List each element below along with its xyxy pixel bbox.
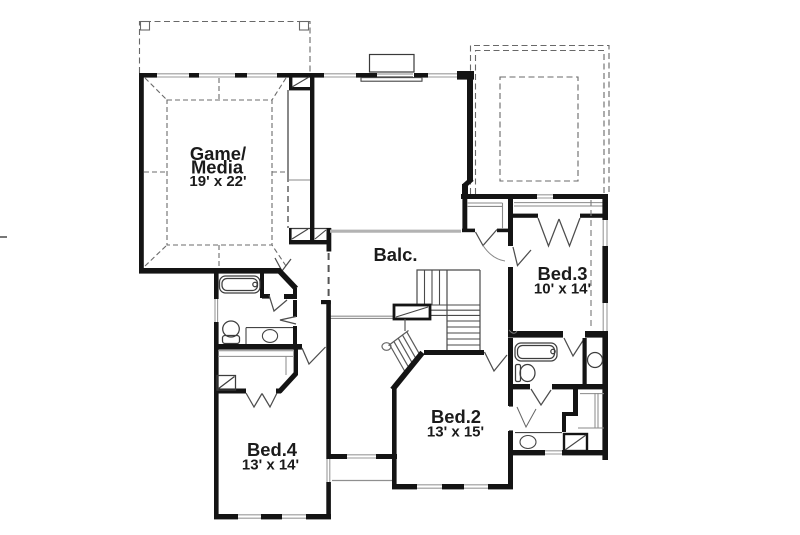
svg-text:13' x 14': 13' x 14' xyxy=(242,457,299,474)
svg-text:13' x 15': 13' x 15' xyxy=(427,424,484,441)
svg-text:19' x 22': 19' x 22' xyxy=(189,173,246,190)
svg-text:Balc.: Balc. xyxy=(374,244,418,265)
svg-text:10' x 14': 10' x 14' xyxy=(534,281,591,298)
